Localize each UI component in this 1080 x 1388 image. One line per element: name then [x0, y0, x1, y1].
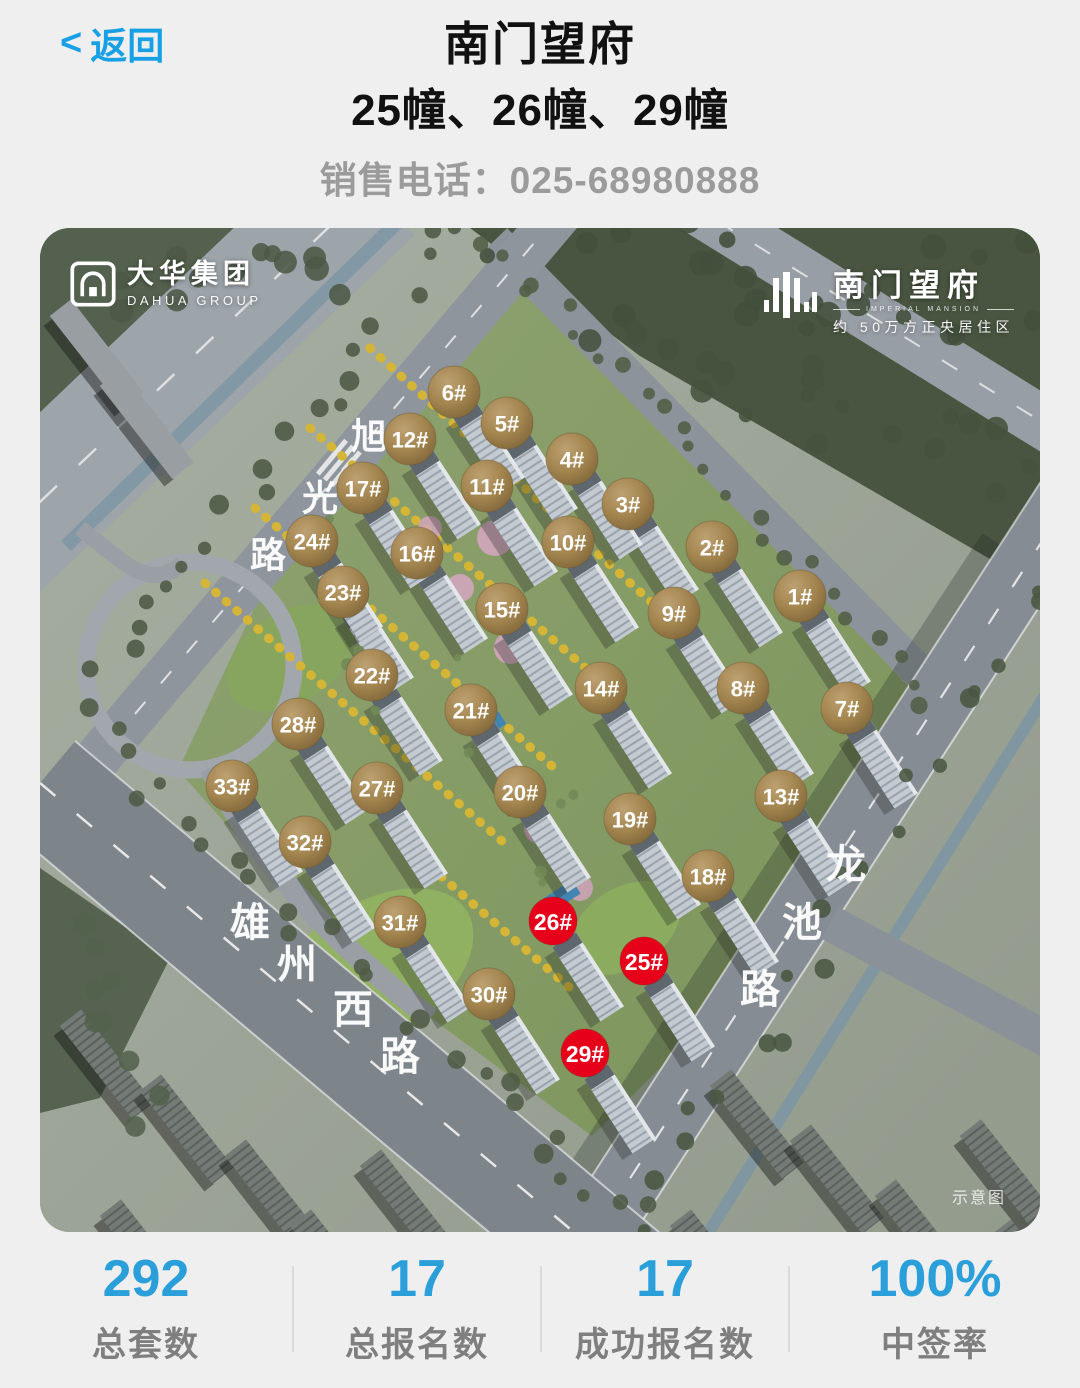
building-marker-16: 16# [391, 527, 443, 579]
svg-text:32#: 32# [287, 831, 324, 856]
building-marker-22: 22# [346, 649, 398, 701]
svg-text:23#: 23# [325, 581, 362, 606]
building-marker-9: 9# [648, 587, 700, 639]
svg-text:11#: 11# [469, 475, 505, 500]
svg-text:9#: 9# [662, 602, 686, 627]
svg-text:8#: 8# [731, 677, 755, 702]
svg-text:28#: 28# [280, 713, 317, 738]
svg-text:15#: 15# [484, 598, 521, 623]
building-marker-4: 4# [546, 433, 598, 485]
building-marker-28: 28# [272, 698, 324, 750]
svg-text:22#: 22# [354, 664, 391, 689]
watermark: 示意图 [952, 1184, 1006, 1208]
project-tagline: 约 50万方正央居住区 [833, 317, 1014, 337]
svg-text:24#: 24# [294, 530, 331, 555]
building-marker-17: 17# [337, 462, 389, 514]
building-marker-20: 20# [494, 766, 546, 818]
svg-text:33#: 33# [214, 775, 251, 800]
stat-winning-rate: 100% 中签率 [790, 1252, 1080, 1366]
stat-label: 中签率 [881, 1317, 989, 1366]
road-label-char: 光 [302, 478, 338, 519]
road-label-char: 池 [782, 901, 822, 945]
svg-text:2#: 2# [700, 536, 724, 561]
svg-text:10#: 10# [550, 531, 587, 556]
stat-label: 总报名数 [345, 1317, 489, 1366]
developer-name-cn: 大华集团 [127, 260, 262, 290]
road-label-char: 路 [250, 535, 287, 576]
developer-logo: 大华集团 DAHUA GROUP [70, 260, 262, 308]
building-marker-3: 3# [602, 478, 654, 530]
building-marker-27: 27# [351, 762, 403, 814]
svg-text:12#: 12# [392, 428, 429, 453]
page-subtitle: 25幢、26幢、29幢 [0, 74, 1080, 138]
building-marker-21: 21# [445, 684, 497, 736]
stat-label: 总套数 [92, 1317, 200, 1366]
building-marker-11: 11# [461, 460, 513, 512]
developer-name-en: DAHUA GROUP [127, 293, 262, 308]
building-marker-25: 25# [620, 937, 668, 985]
building-marker-1: 1# [774, 570, 826, 622]
stat-total-units: 292 总套数 [0, 1252, 292, 1366]
svg-text:3#: 3# [616, 493, 640, 518]
svg-text:26#: 26# [534, 909, 573, 935]
phone-number: 025-68980888 [510, 160, 761, 201]
svg-text:4#: 4# [560, 448, 584, 473]
road-label-char: 雄 [230, 901, 270, 945]
building-marker-6: 6# [428, 366, 480, 418]
svg-text:31#: 31# [382, 911, 419, 936]
phone-label: 销售电话： [320, 160, 510, 201]
svg-text:1#: 1# [788, 585, 812, 610]
stat-value: 17 [636, 1252, 694, 1307]
building-marker-5: 5# [481, 397, 533, 449]
road-label-char: 西 [333, 988, 373, 1032]
building-marker-32: 32# [279, 816, 331, 868]
stat-successful-registrations: 17 成功报名数 [542, 1252, 788, 1366]
sales-phone[interactable]: 销售电话：025-68980888 [0, 150, 1080, 204]
building-marker-14: 14# [575, 662, 627, 714]
svg-text:30#: 30# [471, 983, 508, 1008]
building-marker-33: 33# [206, 760, 258, 812]
page: < 返回 南门望府 25幢、26幢、29幢 销售电话：025-68980888 [0, 0, 1080, 1388]
page-title: 南门望府 [0, 8, 1080, 74]
building-marker-15: 15# [476, 583, 528, 635]
building-marker-12: 12# [384, 413, 436, 465]
aerial-rendering: 旭光路雄州西路龙池路 1#2#3#4#5#6#7#8#9#10#11#12#13… [40, 228, 1040, 1232]
road-label-char: 旭 [351, 416, 387, 457]
svg-text:25#: 25# [625, 949, 664, 975]
building-marker-8: 8# [717, 662, 769, 714]
site-plan-image[interactable]: 旭光路雄州西路龙池路 1#2#3#4#5#6#7#8#9#10#11#12#13… [40, 228, 1040, 1232]
road-label-char: 州 [277, 943, 317, 987]
svg-text:14#: 14# [583, 677, 620, 702]
project-name: 南门望府 [833, 270, 1014, 301]
building-marker-7: 7# [821, 682, 873, 734]
road-label-char: 路 [380, 1035, 421, 1079]
building-marker-19: 19# [604, 793, 656, 845]
stat-value: 17 [388, 1252, 446, 1307]
svg-text:27#: 27# [359, 777, 396, 802]
road-label-char: 路 [740, 968, 781, 1012]
svg-text:13#: 13# [763, 785, 800, 810]
stat-label: 成功报名数 [575, 1317, 755, 1366]
road-label-char: 龙 [826, 843, 866, 887]
stat-value: 292 [103, 1252, 190, 1307]
project-name-en: IMPERIAL MANSION [866, 306, 981, 313]
svg-text:6#: 6# [442, 381, 466, 406]
stat-value: 100% [869, 1252, 1002, 1307]
building-marker-24: 24# [286, 515, 338, 567]
building-marker-29: 29# [561, 1029, 609, 1077]
building-marker-26: 26# [529, 897, 577, 945]
project-logo-icon [762, 270, 820, 320]
project-logo: 南门望府 IMPERIAL MANSION 约 50万方正央居住区 [762, 270, 1014, 337]
building-marker-31: 31# [374, 896, 426, 948]
svg-text:21#: 21# [453, 699, 490, 724]
building-marker-2: 2# [686, 521, 738, 573]
building-marker-10: 10# [542, 516, 594, 568]
svg-text:5#: 5# [495, 412, 519, 437]
stats-bar: 292 总套数 17 总报名数 17 成功报名数 100% 中签率 [0, 1252, 1080, 1366]
stat-total-registrations: 17 总报名数 [294, 1252, 540, 1366]
building-marker-23: 23# [317, 566, 369, 618]
svg-text:19#: 19# [612, 808, 649, 833]
building-marker-30: 30# [463, 968, 515, 1020]
svg-text:16#: 16# [399, 542, 436, 567]
dahua-logo-icon [70, 261, 116, 307]
building-marker-13: 13# [755, 770, 807, 822]
svg-text:17#: 17# [345, 477, 382, 502]
svg-text:18#: 18# [690, 865, 727, 890]
svg-text:7#: 7# [835, 697, 859, 722]
building-marker-18: 18# [682, 850, 734, 902]
svg-text:20#: 20# [502, 781, 539, 806]
svg-text:29#: 29# [566, 1041, 605, 1067]
